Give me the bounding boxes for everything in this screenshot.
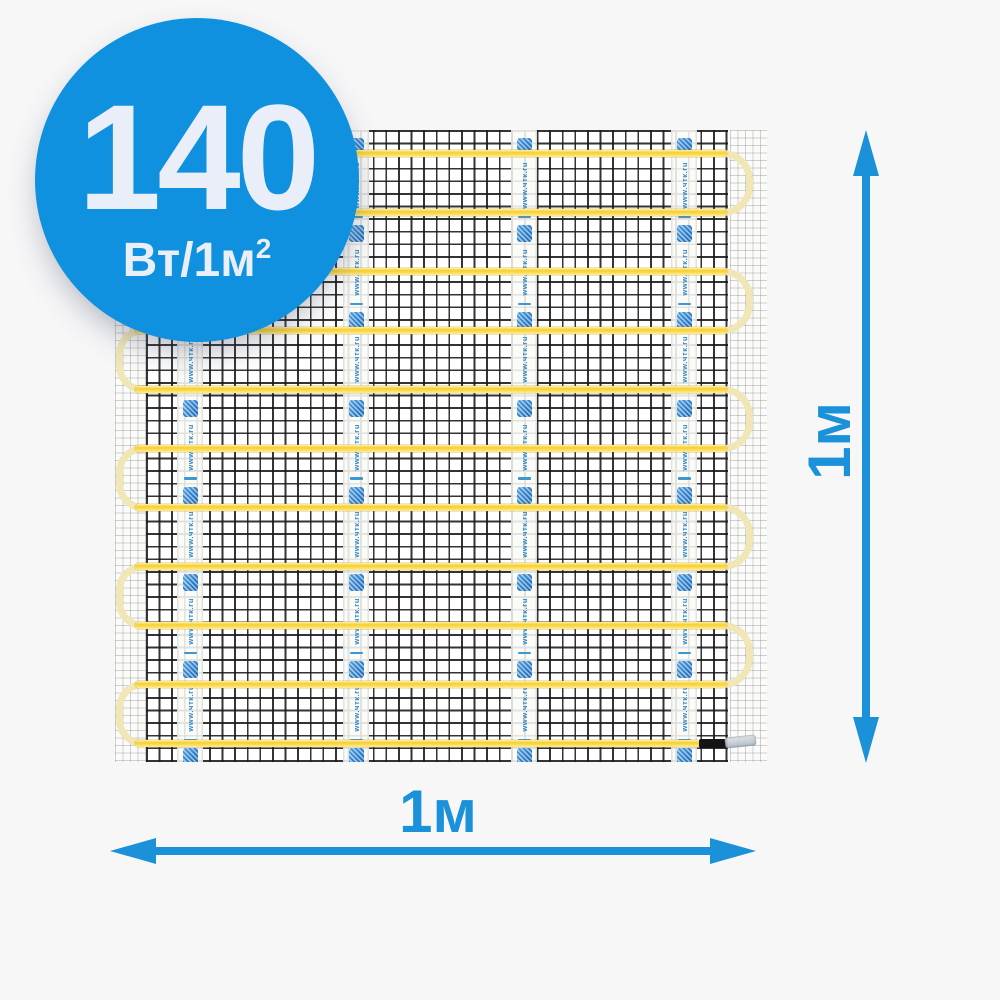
tape-dash-mark [518,652,531,655]
tape-brand-logo-icon [677,661,692,678]
tape-brand-logo-icon [183,400,198,417]
tape-dash-mark [678,216,691,219]
tape-url-text: www.чтк.ru [520,336,529,383]
tape-brand-logo-icon [517,748,532,762]
tape-brand-logo-icon [183,487,198,504]
product-image: www.чтк.ruwww.чтк.ruwww.чтк.ruwww.чтк.ru… [0,0,1000,1000]
tape-brand-logo-icon [677,748,692,762]
tape-dash-mark [184,652,197,655]
tape-dash-mark [518,216,531,219]
tape-dash-mark [350,477,363,480]
tape-url-text: www.чтк.ru [680,336,689,383]
heating-cable-row [135,681,727,688]
tape-url-text: www.чтк.ru [352,336,361,383]
cable-end-cap-icon [699,739,726,748]
tape-url-text: www.чтк.ru [680,511,689,558]
tape-brand-logo-icon [183,574,198,591]
width-dimension-line [154,847,712,855]
tape-dash-mark [518,477,531,480]
tape-url-text: www.чтк.ru [520,685,529,732]
heating-cable-row [135,386,727,393]
arrow-up-icon [853,130,879,176]
height-dimension-line [862,174,870,717]
power-unit: Вт/1м2 [123,233,272,288]
tape-brand-logo-icon [677,487,692,504]
power-unit-base: Вт/1м [123,234,256,287]
tape-brand-logo-icon [349,748,364,762]
arrow-left-icon [110,838,156,864]
heating-cable-row [135,445,727,452]
tape-url-text: www.чтк.ru [186,685,195,732]
tape-dash-mark [678,477,691,480]
tape-brand-logo-icon [349,400,364,417]
tape-brand-logo-icon [349,574,364,591]
tape-brand-logo-icon [183,661,198,678]
tape-dash-mark [518,303,531,306]
tape-url-text: www.чтк.ru [352,511,361,558]
tape-brand-logo-icon [677,400,692,417]
tape-dash-mark [184,477,197,480]
power-unit-sup: 2 [256,233,272,264]
tape-brand-logo-icon [517,400,532,417]
tape-url-text: www.чтк.ru [186,336,195,383]
arrow-right-icon [710,838,756,864]
heating-cable-row [135,622,727,629]
tape-brand-logo-icon [517,661,532,678]
tape-url-text: www.чтк.ru [520,511,529,558]
tape-dash-mark [350,303,363,306]
tape-url-text: www.чтк.ru [352,685,361,732]
tape-url-text: www.чтк.ru [680,162,689,209]
heating-cable-row [135,563,727,570]
tape-brand-logo-icon [349,661,364,678]
height-dimension-label: 1м [800,381,860,501]
tape-brand-logo-icon [517,487,532,504]
power-badge: 140 Вт/1м2 [35,18,359,342]
power-value: 140 [78,86,316,229]
tape-brand-logo-icon [677,574,692,591]
arrow-down-icon [853,717,879,763]
tape-url-text: www.чтк.ru [520,162,529,209]
tape-dash-mark [678,303,691,306]
tape-brand-logo-icon [349,487,364,504]
width-dimension-label: 1м [358,782,518,842]
heating-cable-row [135,740,700,747]
tape-url-text: www.чтк.ru [680,685,689,732]
tape-dash-mark [678,652,691,655]
tape-brand-logo-icon [517,225,532,242]
tape-dash-mark [350,652,363,655]
tape-brand-logo-icon [677,225,692,242]
tape-brand-logo-icon [517,574,532,591]
tape-url-text: www.чтк.ru [186,511,195,558]
heating-cable-row [135,504,727,511]
tape-brand-logo-icon [183,748,198,762]
